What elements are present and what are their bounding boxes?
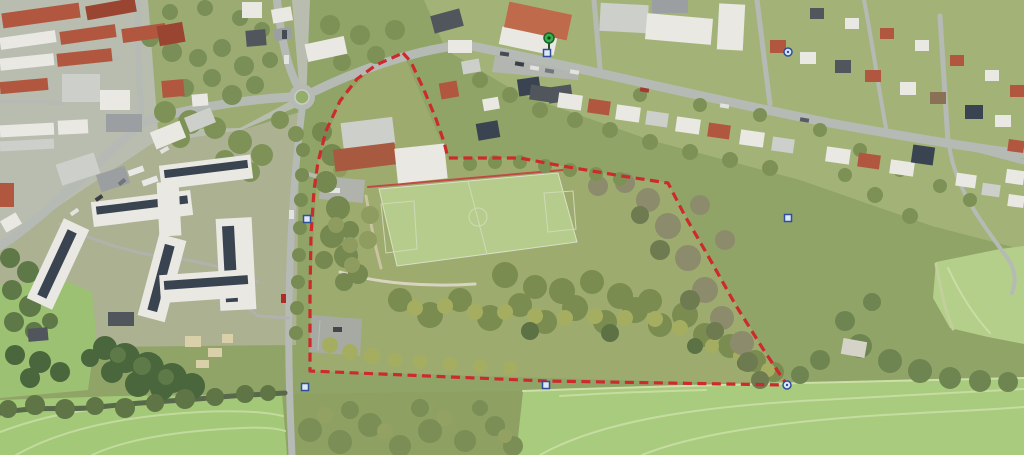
trees-site-south-tree [523,275,547,299]
trees-gardens-topright-tree [867,187,883,203]
playground-patches-item [222,334,233,343]
trees-site-south-light-tree [413,355,427,369]
houses-topright-item [880,28,894,39]
houses-topright-item [955,173,977,189]
trees-scrub-right-tree [908,359,932,383]
trees-site-south-light-tree [617,310,633,326]
trees-meadow-bottom-tree [341,401,359,419]
trees-meadow-bottom-light-tree [437,410,453,426]
vehicles-item [282,30,287,39]
marker-dot [786,384,788,386]
trees-park-tree [251,144,273,166]
playground-patches-item [208,348,222,357]
trees-meadow-bottom-tree [418,419,442,443]
houses-topright-item [439,81,460,100]
blue-square-marker[interactable] [543,382,550,389]
trees-gardens-topright-tree [902,208,918,224]
trees-site-south-light-tree [364,348,380,364]
trees-site-south-light-tree [705,339,719,353]
trees-scrub-right-tree [969,370,991,392]
trees-park-tree [228,130,252,154]
trees-meadow-bottom-tree [454,430,476,452]
terraced-houses-topleft-item [58,119,89,135]
trees-conifer-grove-tree [5,345,25,365]
trees-site-south-light-tree [672,320,688,336]
trees-gardens-topright-tree [350,25,370,45]
playground-patches-item [185,336,201,347]
trees-site-west-light-tree [361,206,379,224]
trees-site-south-light-tree [527,308,543,324]
trees-gardens-topright-tree [693,98,707,112]
trees-road-south-tree [289,326,303,340]
blue-vertex-marker[interactable] [783,381,791,389]
trees-park-tree [288,126,304,142]
trees-gardens-topleft-tree [246,76,264,94]
houses-topright-item [950,55,964,66]
trees-gardens-topright-tree [472,72,488,88]
aerial-photo-map[interactable] [0,0,1024,455]
trees-park-tree [271,111,289,129]
houses-topright-item [930,92,946,104]
vehicles-item [289,210,294,219]
trees-site-south-tree [607,283,633,309]
trees-gardens-topright-tree [963,193,977,207]
trees-site-south-light-tree [443,357,457,371]
trees-gardens-topright-tree [933,179,947,193]
houses-topright-item [1010,85,1024,97]
trees-meadow-bottom-light-tree [377,423,393,439]
houses-topright-item [845,18,859,29]
industrial-buildings-topright-item [652,0,688,13]
trees-stream-tree [206,388,224,406]
trees-east-boundary-tree [715,230,735,250]
trees-gardens-topright-tree [502,87,518,103]
trees-gardens-topright-tree [762,160,778,176]
trees-site-south-tree [492,262,518,288]
trees-east-boundary-dark-tree [706,322,724,340]
trees-conifer-light-tree [158,369,174,385]
blue-square-marker[interactable] [302,384,309,391]
trees-meadow-bottom-tree [328,430,352,454]
trees-east-boundary-dark-tree [650,240,670,260]
marker-square [544,50,551,57]
trees-east-boundary-dark-tree [751,371,769,389]
blue-square-marker[interactable] [544,50,551,57]
trees-road-south-tree [292,248,306,262]
houses-topright-item [1007,139,1024,153]
trees-gardens-topleft-tree [262,52,278,68]
trees-east-boundary-tree [655,213,681,239]
trees-road-south-tree [291,275,305,289]
trees-park-tree [154,101,176,123]
trees-meadow-bottom-light-tree [317,407,333,423]
trees-east-boundary-dark-tree [631,206,649,224]
terraced-houses-topleft-item [100,90,130,110]
blue-square-marker[interactable] [304,216,311,223]
houses-topright-item [900,82,916,95]
trees-gardens-topleft-tree [189,49,207,67]
trees-site-west-tree [335,273,353,291]
industrial-buildings-topright-item [599,3,648,33]
trees-site-south-light-tree [587,308,603,324]
trees-scrub-right-tree [835,311,855,331]
houses-topright-item [800,52,816,64]
trees-gardens-topleft-tree [162,4,178,20]
trees-gardens-topright-tree [320,15,340,35]
vehicles-item [281,294,286,303]
trees-site-dark-tree [601,324,619,342]
trees-gardens-topright-tree [385,20,405,40]
houses-topright-item [1007,194,1024,208]
trees-road-south-tree [296,143,310,157]
trees-gardens-topleft-tree [213,39,231,57]
trees-conifer-grove-tree [125,371,151,397]
trees-gardens-topright-tree [838,168,852,182]
trees-gardens-topleft-tree [197,0,213,16]
houses-topright-item [965,105,983,119]
blue-circle-marker[interactable] [784,48,792,56]
trees-left-edge-tree [0,248,20,268]
trees-gardens-topright-tree [532,102,548,118]
trees-left-edge-tree [4,312,24,332]
trees-site-south-tree [638,289,662,313]
terraced-houses-topleft-item [242,2,262,18]
trees-conifer-grove-tree [101,361,123,383]
terraced-houses-topleft-item [62,74,100,102]
trees-site-south-light-tree [467,304,483,320]
trees-gardens-topright-tree [753,108,767,122]
houses-topright-item [448,40,472,53]
trees-site-south-light-tree [557,310,573,326]
trees-conifer-grove-tree [20,368,40,388]
apartment-blocks-item [108,312,134,326]
trees-stream-tree [55,399,75,419]
trees-stream-tree [260,385,276,401]
houses-topright-item [995,115,1011,127]
trees-east-boundary-dark-tree [738,352,758,372]
trees-site-south-light-tree [473,359,487,373]
trees-scrub-right-tree [878,349,902,373]
apartment-blocks-item [157,181,182,236]
trees-site-west-light-tree [359,231,377,249]
houses-topright-item [911,145,935,166]
trees-conifer-light-tree [133,357,151,375]
houses-topright-item [529,85,553,103]
trees-gardens-topright-tree [813,123,827,137]
terraced-houses-topleft-item [192,93,209,106]
trees-site-dark-tree [687,338,703,354]
trees-gardens-topright-tree [602,122,618,138]
trees-scrub-right-tree [810,350,830,370]
trees-stream-tree [115,398,135,418]
trees-meadow-bottom-light-tree [498,429,512,443]
marker-square [304,216,311,223]
trees-stream-tree [175,389,195,409]
trees-site-south-light-tree [647,311,663,327]
trees-site-west-light-tree [328,217,344,233]
playground-patches-item [196,360,209,368]
trees-gardens-topleft-tree [222,85,242,105]
marker-square [543,382,550,389]
houses-topright-item [915,40,929,51]
blue-square-marker[interactable] [785,215,792,222]
trees-scrub-right-tree [939,367,961,389]
trees-gardens-topleft-tree [234,56,254,76]
trees-east-boundary-tree [690,195,710,215]
houses-topright-item [810,8,824,19]
trees-site-south-light-tree [322,337,338,353]
trees-gardens-topleft-tree [203,69,221,87]
trees-site-south-light-tree [437,298,453,314]
houses-topright-item [1005,169,1024,185]
terraced-houses-topleft-item [245,29,266,47]
trees-east-boundary-dark-tree [680,290,700,310]
terraced-houses-topleft-item [0,183,14,207]
court-car [333,327,342,332]
street-topleft-h2 [0,101,62,103]
trees-site-south-light-tree [497,304,513,320]
trees-east-boundary-tree [675,245,701,271]
trees-scrub-right-tree [791,366,809,384]
vehicles-item [284,55,289,64]
marker-square [302,384,309,391]
aerial-map-canvas[interactable] [0,0,1024,455]
trees-stream-tree [236,385,254,403]
street-topleft-vertical [137,0,141,122]
trees-site-south-light-tree [388,353,402,367]
trees-left-edge-tree [42,313,58,329]
trees-meadow-bottom-tree [472,400,488,416]
roundabout-island [295,90,309,104]
trees-conifer-grove-tree [81,349,99,367]
houses-topright-item [865,70,881,82]
trees-gardens-topright-tree [642,134,658,150]
houses-topright-item [981,183,1000,197]
trees-gardens-topright-tree [682,144,698,160]
trees-road-south-tree [290,301,304,315]
trees-conifer-light-tree [110,347,126,363]
industrial-buildings-topright-item [717,3,745,50]
trees-scrub-right-tree [998,372,1018,392]
marker-dot [787,51,789,53]
trees-scrub-right-tree [863,293,881,311]
trees-conifer-grove-tree [50,362,70,382]
pin-dot [547,36,550,39]
trees-stream-tree [146,394,164,412]
trees-site-south-light-tree [407,300,423,316]
clubhouse-buildings-item [394,143,447,183]
trees-site-south-tree [580,270,604,294]
trees-site-west-tree [315,251,333,269]
trees-site-dark-tree [521,322,539,340]
trees-site-west-tree [315,171,337,193]
trees-site-west-light-tree [344,257,360,273]
trees-meadow-bottom-tree [411,399,429,417]
trees-site-south-light-tree [503,361,517,375]
apartment-blocks-item [27,327,48,342]
houses-topright-item [835,60,851,73]
trees-stream-tree [25,395,45,415]
trees-site-west-light-tree [342,237,358,253]
trees-gardens-topright-tree [567,112,583,128]
trees-site-west-tree [326,196,350,220]
marker-square [785,215,792,222]
trees-stream-tree [86,397,104,415]
houses-topright-item [985,70,999,81]
trees-east-boundary-tree [730,331,754,355]
trees-road-south-tree [295,168,309,182]
trees-site-south-tree [549,278,575,304]
trees-site-south-light-tree [342,344,358,360]
trees-road-south-tree [294,193,308,207]
terraced-houses-topleft-item [106,114,142,132]
terraced-houses-topleft-item [161,79,184,98]
trees-meadow-bottom-tree [298,418,322,442]
trees-left-edge-tree [2,280,22,300]
trees-gardens-topright-tree [722,152,738,168]
